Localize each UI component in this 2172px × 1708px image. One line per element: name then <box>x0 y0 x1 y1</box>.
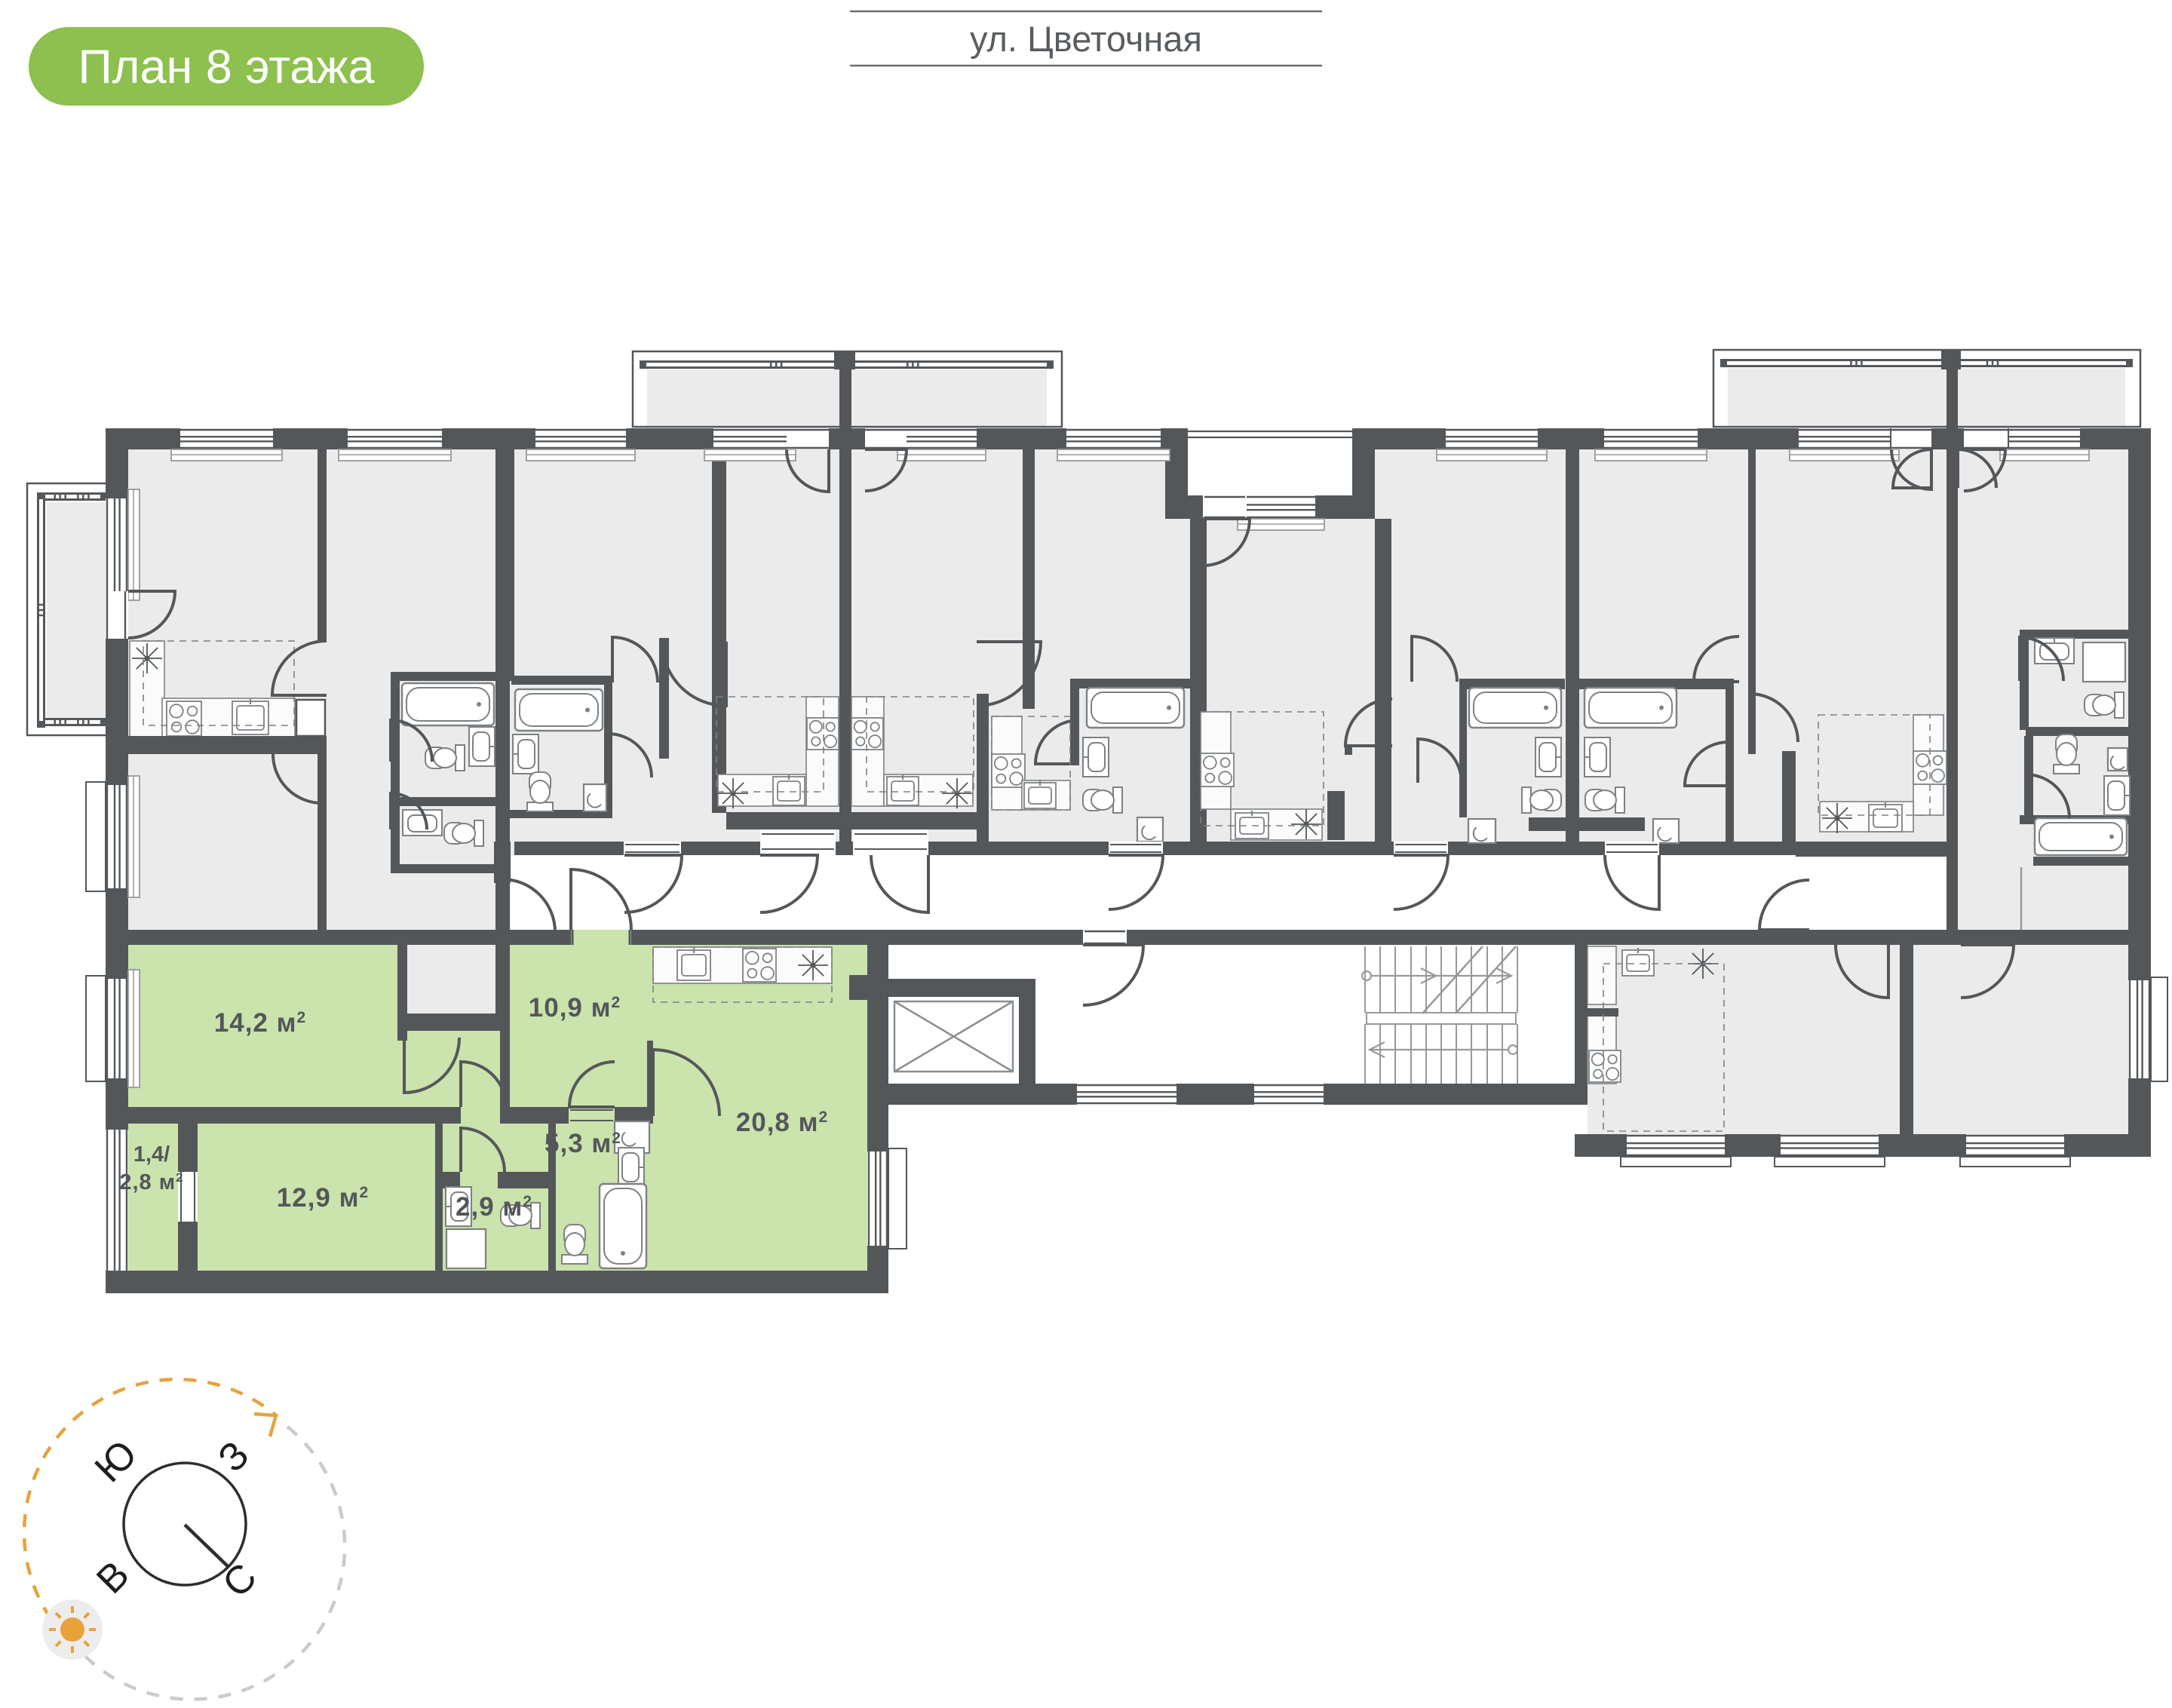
svg-text:1,4/: 1,4/ <box>133 1142 170 1167</box>
svg-text:2,8 м2: 2,8 м2 <box>119 1170 183 1194</box>
svg-text:14,2 м2: 14,2 м2 <box>214 1008 306 1038</box>
svg-text:5,3 м2: 5,3 м2 <box>545 1129 621 1158</box>
svg-text:10,9 м2: 10,9 м2 <box>529 993 621 1023</box>
svg-text:2,9 м2: 2,9 м2 <box>456 1192 532 1222</box>
svg-text:20,8 м2: 20,8 м2 <box>736 1108 828 1137</box>
svg-text:12,9 м2: 12,9 м2 <box>277 1183 369 1213</box>
svg-text:ул. Цветочная: ул. Цветочная <box>970 19 1202 59</box>
svg-text:План 8 этажа: План 8 этажа <box>78 41 375 94</box>
